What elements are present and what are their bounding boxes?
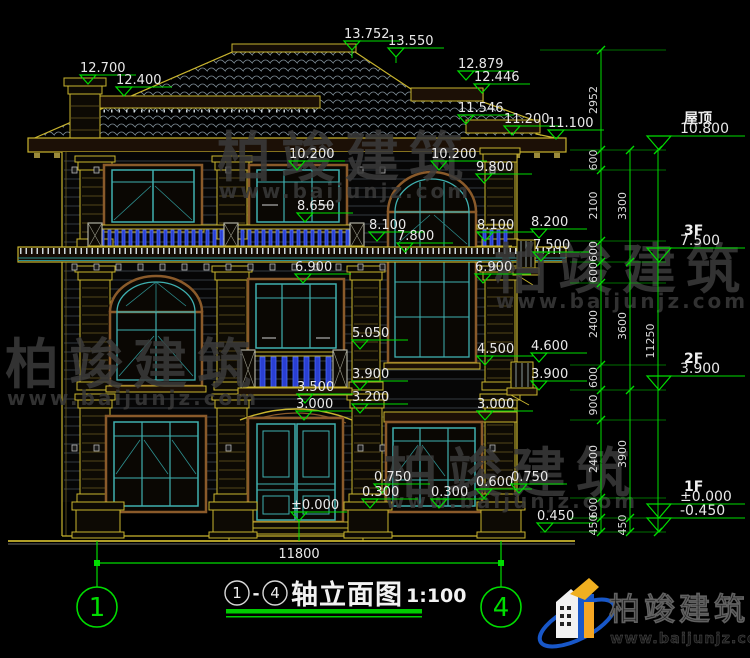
- elevation-marker: 13.550: [388, 34, 444, 63]
- elevation-value: 11.200: [504, 112, 550, 127]
- elevation-value: 0.300: [431, 485, 468, 500]
- baluster: [157, 230, 160, 246]
- window-1f-left: [106, 416, 206, 512]
- elevation-value: 6.900: [475, 260, 512, 275]
- elevation-marker: 4.600: [531, 339, 587, 362]
- chain-dim-value: 3300: [616, 192, 629, 220]
- title-dash: -: [252, 584, 259, 604]
- dentil: [554, 153, 560, 158]
- baluster: [248, 230, 251, 246]
- baluster: [192, 230, 195, 246]
- watermark-url: www.baijunjz.com: [7, 386, 259, 410]
- axis-bubble-1-label: 1: [89, 593, 106, 623]
- chain-dim-value: 2100: [587, 192, 600, 220]
- floor-level-triangle: [647, 518, 671, 532]
- vent-square: [204, 264, 209, 270]
- vent-square: [160, 264, 165, 270]
- logo-name: 柏竣建筑: [609, 592, 749, 628]
- elevation-triangle: [458, 71, 474, 80]
- floor-level-marker: 2F3.900: [647, 351, 745, 390]
- floor-elevation: 3.900: [680, 361, 720, 377]
- elevation-marker: 8.200: [531, 215, 587, 238]
- title-scale: 1:100: [406, 585, 466, 607]
- chain-dim-value: 600: [587, 262, 600, 283]
- pedestal: [209, 502, 257, 538]
- watermark-url: www.baijunjz.com: [496, 289, 748, 313]
- vent-square: [72, 264, 77, 270]
- baluster: [255, 230, 258, 246]
- baluster: [136, 230, 139, 246]
- baluster: [122, 230, 125, 246]
- elevation-value: 7.800: [397, 229, 434, 244]
- elevation-value: 8.200: [531, 215, 568, 230]
- elevation-value: 12.446: [474, 70, 520, 85]
- title-underline-thick: [226, 609, 422, 614]
- elevation-value: 6.900: [295, 260, 332, 275]
- axis-bubble-4-label: 4: [493, 593, 510, 623]
- baluster: [150, 230, 153, 246]
- window-3f-left: [102, 165, 204, 232]
- elevation-value: 4.600: [531, 339, 568, 354]
- vent-square: [94, 264, 99, 270]
- elevation-value: 11.100: [548, 116, 594, 131]
- chain-dim-value: 2400: [587, 445, 600, 473]
- logo-accent: [584, 602, 594, 638]
- chimney: [64, 78, 106, 140]
- roof-right-upper-band: [411, 88, 483, 101]
- elevation-value: ±0.000: [291, 498, 339, 513]
- logo-mark: [533, 578, 621, 656]
- elevation-value: 8.100: [477, 218, 514, 233]
- dim-end-right: [498, 560, 504, 566]
- vent-square: [94, 167, 99, 173]
- title-underline-thin: [226, 616, 422, 618]
- vent-square: [72, 167, 77, 173]
- chain-dim-value: 2400: [587, 310, 600, 338]
- title-axis-4: 4: [270, 584, 280, 602]
- dentil: [34, 153, 40, 158]
- baluster: [143, 230, 146, 246]
- elevation-value: 5.050: [352, 326, 389, 341]
- baluster: [276, 230, 279, 246]
- baluster: [325, 230, 328, 246]
- elevation-triangle: [388, 48, 404, 57]
- elevation-value: 3.000: [477, 397, 514, 412]
- elevation-triangle: [531, 229, 547, 238]
- baluster: [213, 230, 216, 246]
- baluster: [108, 230, 111, 246]
- roof-left-eave-band: [94, 96, 320, 108]
- chain-dim-value: 600: [587, 241, 600, 262]
- dimension-chain: 11250: [644, 146, 662, 536]
- elevation-value: 3.500: [297, 380, 334, 395]
- elevation-triangle: [537, 523, 553, 532]
- elevation-value: 9.800: [476, 160, 513, 175]
- vent-square: [336, 264, 341, 270]
- elevation-marker: 11.100: [548, 116, 604, 139]
- baluster: [171, 230, 174, 246]
- elevation-value: 3.000: [296, 397, 333, 412]
- cad-elevation-drawing: 柏竣建筑www.baijunjz.com柏竣建筑www.baijunjz.com…: [0, 0, 750, 658]
- floor-level-marker: -0.450: [647, 503, 745, 532]
- dentil: [534, 153, 540, 158]
- vent-square: [182, 264, 187, 270]
- baluster: [311, 230, 314, 246]
- watermark-url: www.baijunjz.com: [386, 489, 638, 513]
- pedestal: [72, 502, 124, 538]
- company-logo: 柏竣建筑 www.baijunjz.com: [533, 578, 750, 656]
- vent-square: [248, 264, 253, 270]
- vent-square: [380, 264, 385, 270]
- baluster: [178, 230, 181, 246]
- vent-square: [94, 445, 99, 451]
- baluster: [199, 230, 202, 246]
- elevation-triangle: [531, 353, 547, 362]
- elevation-marker: 3.900: [531, 367, 587, 390]
- baluster: [282, 357, 287, 387]
- chain-dim-value: 600: [587, 367, 600, 388]
- elevation-value: 0.750: [374, 470, 411, 485]
- baluster: [290, 230, 293, 246]
- pilaster: [212, 394, 252, 502]
- dentil: [54, 153, 60, 158]
- vent-square: [358, 264, 363, 270]
- chain-dim-value: 3600: [616, 312, 629, 340]
- baluster: [206, 230, 209, 246]
- baluster: [346, 230, 349, 246]
- chain-dim-value: 3900: [616, 440, 629, 468]
- baluster: [271, 357, 276, 387]
- logo-url: www.baijunjz.com: [610, 631, 750, 647]
- vent-square: [270, 264, 275, 270]
- elevation-value: 10.200: [289, 147, 335, 162]
- baluster: [283, 230, 286, 246]
- vent-square: [226, 264, 231, 270]
- baluster: [220, 230, 223, 246]
- floor-level-marker: 屋顶10.800: [647, 111, 745, 150]
- pedestal: [344, 502, 392, 538]
- baluster: [269, 230, 272, 246]
- elevation-value: 0.750: [511, 470, 548, 485]
- watermark: 柏竣建筑www.baijunjz.com: [5, 333, 261, 410]
- elevation-value: 3.900: [531, 367, 568, 382]
- roof-ridge-cap: [232, 44, 356, 52]
- elevation-value: 3.200: [352, 390, 389, 405]
- chain-dim-value: 450: [587, 515, 600, 536]
- title-text: 轴立面图: [291, 579, 403, 611]
- elevation-value: 10.200: [431, 147, 477, 162]
- dim-end-left: [94, 560, 100, 566]
- baluster: [318, 230, 321, 246]
- floor-elevation: 7.500: [680, 233, 720, 249]
- baluster: [185, 230, 188, 246]
- elevation-value: 12.400: [116, 73, 162, 88]
- vent-square: [138, 264, 143, 270]
- elevation-value: 0.600: [476, 475, 513, 490]
- chain-dim-value: 900: [587, 395, 600, 416]
- elevation-value: 13.752: [344, 27, 390, 42]
- drawing-canvas: 柏竣建筑www.baijunjz.com柏竣建筑www.baijunjz.com…: [0, 0, 750, 658]
- chain-dim-value: 600: [587, 150, 600, 171]
- vent-square: [226, 445, 231, 451]
- baluster: [115, 230, 118, 246]
- elevation-value: 11.546: [458, 101, 504, 116]
- floor-level-triangle: [647, 136, 671, 150]
- baluster: [262, 230, 265, 246]
- floor-elevation: 10.800: [680, 121, 729, 137]
- baluster: [297, 230, 300, 246]
- baluster: [304, 230, 307, 246]
- elevation-value: 13.550: [388, 34, 434, 49]
- elevation-value: 7.500: [533, 238, 570, 253]
- elevation-triangle: [116, 87, 132, 96]
- floor-level-triangle: [647, 504, 671, 518]
- elevation-value: 8.650: [297, 199, 334, 214]
- elevation-value: 3.900: [352, 367, 389, 382]
- baluster: [241, 230, 244, 246]
- chain-dim-value: 450: [616, 515, 629, 536]
- elevation-value: 4.500: [477, 342, 514, 357]
- elevation-value: 0.450: [537, 509, 574, 524]
- baluster: [164, 230, 167, 246]
- floor-elevation: -0.450: [680, 503, 725, 519]
- chain-dim-value: 2952: [587, 86, 600, 114]
- elevation-value: 0.300: [362, 485, 399, 500]
- watermark-url: www.baijunjz.com: [219, 179, 471, 203]
- vent-square: [116, 264, 121, 270]
- cornice-1f-right: [384, 412, 517, 422]
- overall-dimension-text: 11800: [278, 547, 319, 562]
- floor-level-triangle: [647, 376, 671, 390]
- vent-square: [358, 445, 363, 451]
- baluster: [332, 230, 335, 246]
- title-axis-1: 1: [232, 584, 242, 602]
- drawing-title: 1 - 4 轴立面图 1:100: [225, 579, 466, 618]
- baluster: [129, 230, 132, 246]
- window-2f-middle: [248, 279, 344, 353]
- vent-square: [72, 445, 77, 451]
- baluster: [339, 230, 342, 246]
- chain-dim-value: 11250: [644, 324, 657, 359]
